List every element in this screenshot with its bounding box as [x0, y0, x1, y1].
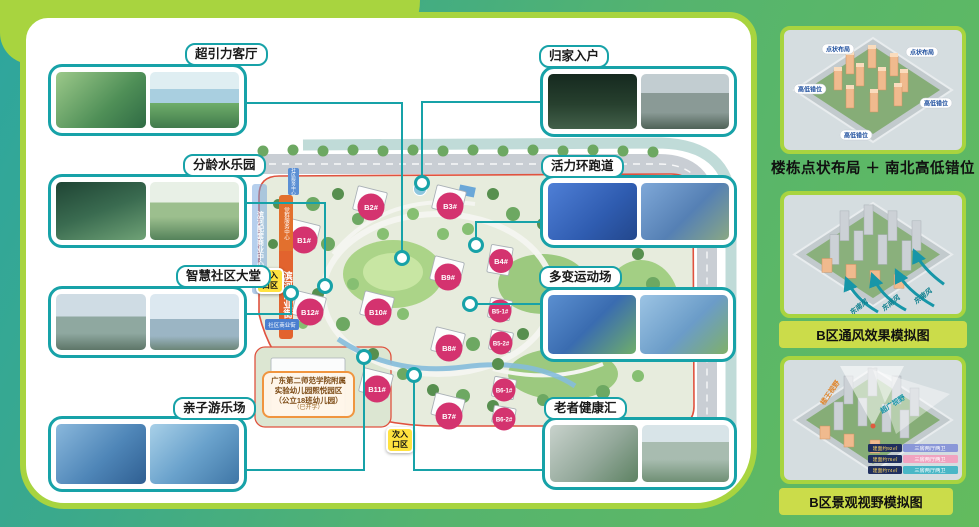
- kindergarten-line2: 实验幼儿园熙悦园区: [266, 386, 351, 396]
- presentation-board: B1# B2# B3# B4# B9# B10# B12# B8# B11# B…: [0, 0, 979, 527]
- kindergarten-line3: （公立18班幼儿园）: [266, 396, 351, 406]
- building-label: B6-1#: [496, 389, 513, 395]
- pill-age-split-water-park: 分龄水乐园: [183, 154, 266, 177]
- photos-super-gravity-living-room: [48, 64, 247, 136]
- kindergarten-line4: （已开学）: [266, 405, 351, 413]
- layout-axon-svg: 点状布局 点状布局 高低错位 高低错位 高低错位: [784, 30, 962, 150]
- legend-area: 建面约76㎡: [873, 456, 898, 463]
- photo-thumbnail: [56, 72, 146, 128]
- chip-label: 高低错位: [924, 100, 948, 108]
- ventilation-sim-image: 东南风 东南风 东南风: [780, 191, 966, 318]
- pill-super-gravity-living-room: 超引力客厅: [185, 43, 268, 66]
- building-label: B5-2#: [493, 342, 510, 348]
- pill-homecoming-entry: 归家入户: [539, 45, 609, 68]
- legend-type: 三房两厅两卫: [914, 444, 945, 452]
- photo-thumbnail: [56, 424, 146, 484]
- community-service-center-banner: 社区服务中心: [288, 168, 299, 195]
- photo-thumbnail: [642, 425, 730, 482]
- building-label: B6-2#: [496, 418, 513, 424]
- building-label: B1#: [297, 236, 312, 245]
- view-sim-svg: 楼王视野 超广视野 建面约92㎡ 三房两厅两卫 建面约76㎡ 三房两厅两卫 建面…: [784, 360, 962, 480]
- secondary-entrance-line2: 口区: [388, 440, 412, 450]
- photo-thumbnail: [150, 72, 240, 128]
- photo-thumbnail: [150, 182, 240, 240]
- secondary-entrance-line1: 次入: [388, 430, 412, 440]
- building-label: B11#: [368, 385, 386, 394]
- photo-thumbnail: [548, 183, 637, 240]
- chip-label: 高低错位: [798, 86, 822, 94]
- photos-smart-community-lobby: [48, 286, 247, 358]
- photo-thumbnail: [640, 295, 728, 354]
- photos-homecoming-entry: [540, 66, 737, 137]
- layout-axon-image: 点状布局 点状布局 高低错位 高低错位 高低错位: [780, 26, 966, 154]
- photos-age-split-water-park: [48, 174, 247, 248]
- building-label: B4#: [494, 257, 509, 266]
- building-label: B9#: [441, 273, 456, 282]
- caption-layout: 楼栋点状布局 ＋ 南北高低错位: [770, 157, 976, 178]
- building-label: B3#: [443, 202, 458, 211]
- kindergarten-label: 广东第二师范学院附属 实验幼儿园熙悦园区 （公立18班幼儿园） （已开学）: [262, 371, 355, 418]
- photo-thumbnail: [150, 294, 240, 350]
- party-service-center-banner: 党群服务中心: [279, 195, 293, 251]
- photos-flexible-sports-field: [540, 287, 736, 362]
- pill-parent-child-playground: 亲子游乐场: [173, 397, 256, 420]
- secondary-entrance-badge: 次入 口区: [386, 427, 414, 453]
- building-label: B7#: [442, 412, 457, 421]
- photos-elder-health-hub: [542, 417, 737, 490]
- kindergarten-line1: 广东第二师范学院附属: [266, 376, 351, 386]
- photos-parent-child-playground: [48, 416, 247, 492]
- legend-area: 建面约74㎡: [873, 467, 898, 474]
- photo-thumbnail: [641, 183, 730, 240]
- legend-type: 三房两厅两卫: [914, 466, 945, 474]
- photo-thumbnail: [56, 294, 146, 350]
- chip-label: 高低错位: [844, 132, 868, 140]
- chip-label: 点状布局: [910, 49, 934, 57]
- view-sim-image: 楼王视野 超广视野 建面约92㎡ 三房两厅两卫 建面约76㎡ 三房两厅两卫 建面…: [780, 356, 966, 484]
- building-label: B2#: [364, 203, 379, 212]
- building-label: B8#: [442, 344, 457, 353]
- legend-type: 三房两厅两卫: [914, 455, 945, 463]
- legend-area: 建面约92㎡: [873, 445, 898, 452]
- building-label: B5-1#: [492, 310, 509, 316]
- pill-flexible-sports-field: 多变运动场: [539, 266, 622, 289]
- caption-ventilation: B区通风效果模拟图: [779, 321, 967, 348]
- photo-thumbnail: [548, 74, 637, 129]
- pill-vitality-loop-track: 活力环跑道: [541, 155, 624, 178]
- chip-label: 点状布局: [826, 46, 850, 54]
- unit-legend: 建面约92㎡ 三房两厅两卫 建面约76㎡ 三房两厅两卫 建面约74㎡ 三房两厅两…: [868, 444, 958, 474]
- pill-smart-community-lobby: 智慧社区大堂: [176, 265, 271, 288]
- photos-vitality-loop-track: [540, 175, 737, 248]
- photo-thumbnail: [641, 74, 730, 129]
- photo-thumbnail: [548, 295, 636, 354]
- building-label: B10#: [369, 308, 388, 317]
- caption-view: B区景观视野模拟图: [779, 488, 953, 515]
- building-label: B12#: [301, 308, 320, 317]
- community-shops-label: 社区商业街: [265, 319, 299, 330]
- photo-thumbnail: [150, 424, 240, 484]
- ventilation-sim-svg: 东南风 东南风 东南风: [784, 195, 962, 314]
- photo-thumbnail: [56, 182, 146, 240]
- photo-thumbnail: [550, 425, 638, 482]
- pill-elder-health-hub: 老者健康汇: [544, 397, 627, 420]
